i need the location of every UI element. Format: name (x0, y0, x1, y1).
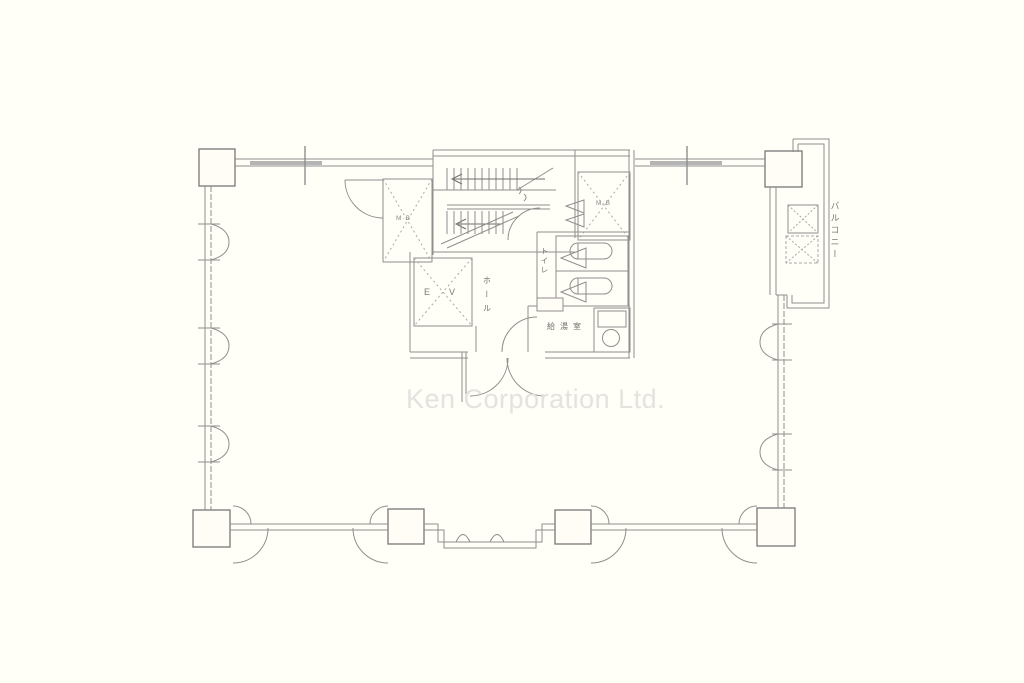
meter-box-right-label: M·B (596, 201, 611, 208)
toilet-fixture (570, 243, 612, 259)
sink (603, 330, 620, 347)
stair-up-mark (524, 194, 526, 201)
left-wall (198, 186, 229, 510)
meter-box-left-label: M·B (396, 216, 411, 223)
floorplan-drawing (0, 0, 1024, 683)
balcony-label: バルコニー (829, 201, 838, 261)
door-swing (345, 180, 383, 218)
column-bottom-right (757, 508, 795, 546)
column-top-left (199, 149, 235, 186)
stair-door-swing (508, 208, 540, 240)
meter-box-left (345, 179, 432, 262)
column-bottom-mid2 (555, 510, 591, 544)
toilet-label: トイレ (540, 247, 548, 276)
floorplan-page: バルコニー トイレ ホール 給湯室 EV M·B M·B Ken Corpora… (0, 0, 1024, 683)
stall-door (561, 282, 586, 302)
column-bottom-mid1 (388, 509, 424, 544)
watermark: Ken Corporation Ltd. (406, 384, 665, 415)
column-bottom-left (193, 510, 230, 547)
elevator-label: EV (424, 288, 474, 297)
right-wall (760, 295, 792, 508)
hall-door-swing (502, 317, 537, 352)
hall-label: ホール (482, 276, 490, 318)
column-top-right (765, 151, 802, 187)
stairs (433, 168, 556, 248)
bottom-wall (230, 506, 757, 563)
toilet-room (537, 200, 629, 306)
kitchenette-label: 給湯室 (547, 323, 586, 331)
